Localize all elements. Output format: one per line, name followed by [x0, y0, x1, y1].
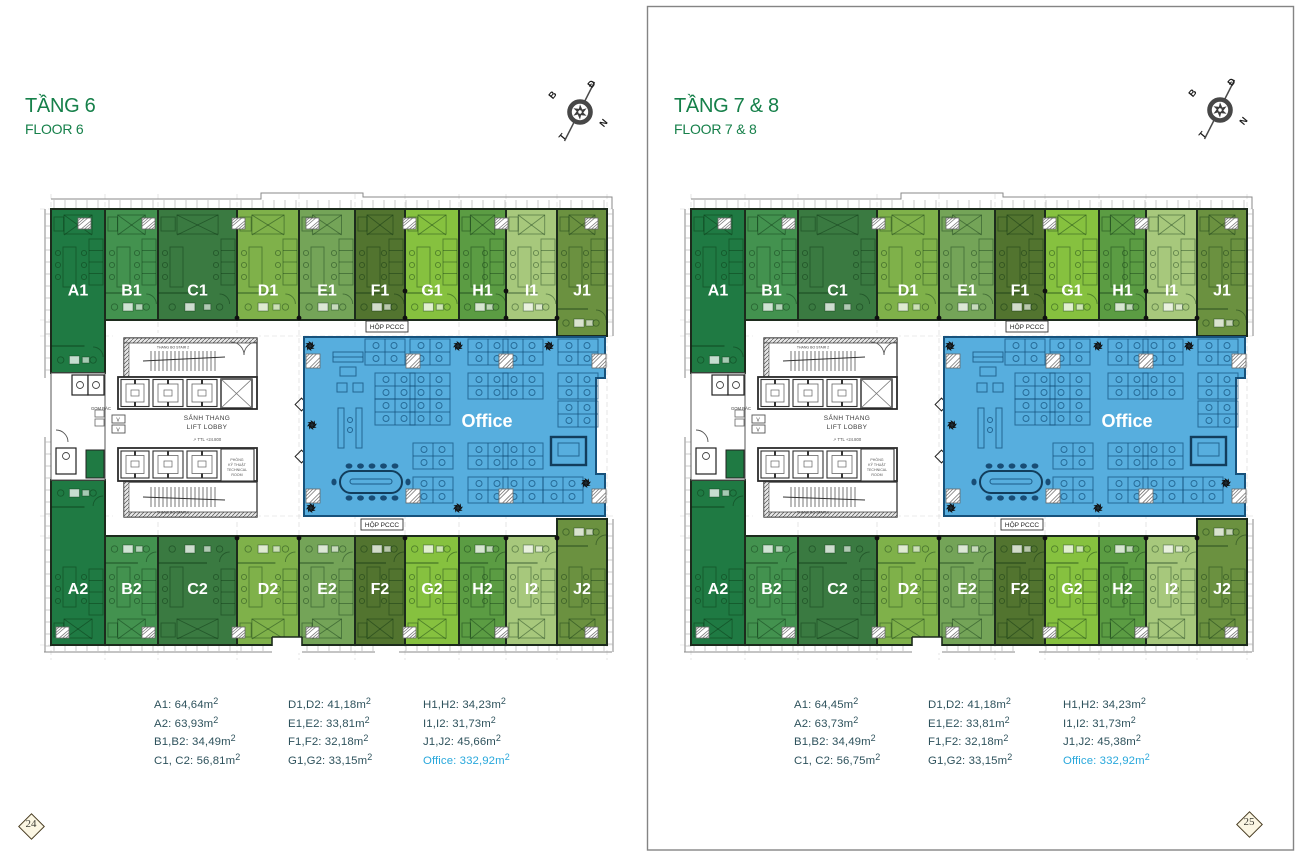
svg-text:F2: F2: [371, 581, 390, 598]
svg-text:F2: F2: [1011, 581, 1030, 598]
svg-text:C2: C2: [827, 581, 848, 598]
svg-text:B: B: [547, 89, 560, 101]
svg-text:TECHNICAL: TECHNICAL: [227, 468, 247, 472]
svg-text:KỸ THUẬT: KỸ THUẬT: [228, 462, 247, 467]
svg-text:E2: E2: [957, 581, 977, 598]
svg-text:N: N: [598, 117, 611, 129]
svg-text:J2: J2: [573, 581, 591, 598]
svg-text:Đ: Đ: [586, 78, 599, 90]
svg-text:N: N: [1238, 115, 1251, 127]
svg-text:B: B: [1187, 87, 1200, 99]
svg-text:D2: D2: [898, 581, 919, 598]
svg-text:H1: H1: [1112, 283, 1133, 300]
svg-text:B1: B1: [121, 283, 142, 300]
svg-text:Office: Office: [461, 411, 512, 431]
svg-text:G2: G2: [1061, 581, 1082, 598]
svg-text:T: T: [1197, 129, 1209, 141]
svg-text:A2: A2: [68, 581, 89, 598]
svg-text:H2: H2: [472, 581, 493, 598]
svg-text:THANG BO STAIR 2: THANG BO STAIR 2: [797, 346, 829, 350]
svg-text:I2: I2: [525, 581, 538, 598]
svg-text:G2: G2: [421, 581, 442, 598]
svg-text:HỘP PCCC: HỘP PCCC: [365, 520, 399, 529]
svg-text:THANG BO STAIR 2: THANG BO STAIR 2: [157, 346, 189, 350]
svg-text:D1: D1: [898, 283, 919, 300]
svg-text:THANG BO STAIR 1: THANG BO STAIR 1: [797, 511, 829, 515]
svg-text:HỘP PCCC: HỘP PCCC: [1010, 322, 1044, 331]
svg-text:J2: J2: [1213, 581, 1231, 598]
svg-text:Đ: Đ: [1226, 76, 1239, 88]
svg-text:H2: H2: [1112, 581, 1133, 598]
svg-text:D2: D2: [258, 581, 279, 598]
svg-text:B2: B2: [121, 581, 142, 598]
svg-text:↗ TTL +24.800: ↗ TTL +24.800: [833, 437, 862, 442]
svg-text:J1: J1: [573, 283, 591, 300]
svg-text:F1: F1: [1011, 283, 1030, 300]
svg-text:GOM RÁC: GOM RÁC: [91, 406, 111, 411]
svg-text:HỘP PCCC: HỘP PCCC: [370, 322, 404, 331]
svg-text:C1: C1: [187, 283, 208, 300]
svg-text:E1: E1: [317, 283, 337, 300]
svg-text:PHÒNG: PHÒNG: [230, 457, 243, 462]
svg-text:TECHNICAL: TECHNICAL: [867, 468, 887, 472]
svg-text:LIFT LOBBY: LIFT LOBBY: [827, 424, 868, 431]
svg-text:J1: J1: [1213, 283, 1231, 300]
svg-text:H1: H1: [472, 283, 493, 300]
svg-text:SẢNH THANG: SẢNH THANG: [184, 413, 231, 422]
svg-text:F1: F1: [371, 283, 390, 300]
svg-text:I2: I2: [1165, 581, 1178, 598]
svg-text:↗ TTL +24.800: ↗ TTL +24.800: [193, 437, 222, 442]
svg-text:Office: Office: [1101, 411, 1152, 431]
svg-text:C1: C1: [827, 283, 848, 300]
svg-text:T: T: [557, 131, 569, 143]
svg-text:G1: G1: [1061, 283, 1082, 300]
svg-text:B2: B2: [761, 581, 782, 598]
svg-text:B1: B1: [761, 283, 782, 300]
svg-text:THANG BO STAIR 1: THANG BO STAIR 1: [157, 511, 189, 515]
svg-text:SẢNH THANG: SẢNH THANG: [824, 413, 871, 422]
svg-text:ROOM: ROOM: [871, 473, 882, 477]
svg-text:A1: A1: [68, 283, 89, 300]
svg-text:I1: I1: [1165, 283, 1178, 300]
svg-text:PHÒNG: PHÒNG: [870, 457, 883, 462]
svg-text:C2: C2: [187, 581, 208, 598]
svg-text:GOM RÁC: GOM RÁC: [731, 406, 751, 411]
svg-text:KỸ THUẬT: KỸ THUẬT: [868, 462, 887, 467]
svg-text:LIFT LOBBY: LIFT LOBBY: [187, 424, 228, 431]
svg-text:G1: G1: [421, 283, 442, 300]
svg-text:A2: A2: [708, 581, 729, 598]
svg-text:ROOM: ROOM: [231, 473, 242, 477]
svg-text:E2: E2: [317, 581, 337, 598]
svg-text:E1: E1: [957, 283, 977, 300]
svg-text:A1: A1: [708, 283, 729, 300]
svg-text:I1: I1: [525, 283, 538, 300]
svg-text:HỘP PCCC: HỘP PCCC: [1005, 520, 1039, 529]
svg-text:D1: D1: [258, 283, 279, 300]
